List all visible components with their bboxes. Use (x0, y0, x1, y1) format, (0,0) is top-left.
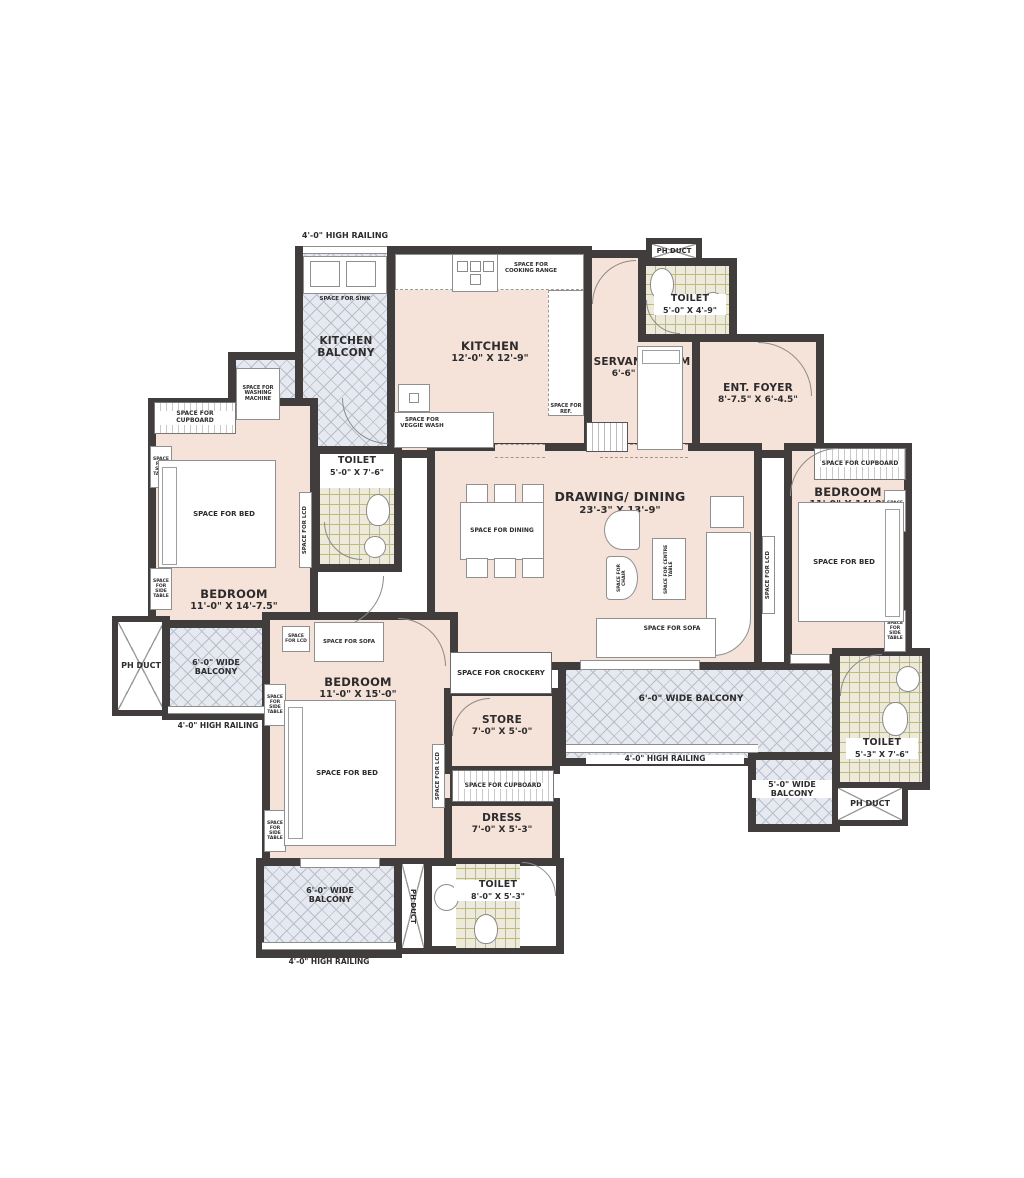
dress-label: DRESS 7'-0" X 5'-3" (448, 812, 556, 835)
ph-duct-bottom-label: PH DUCT (409, 889, 417, 924)
bed-pillow (288, 707, 303, 839)
veggie-wash-label: SPACE FOR VEGGIE WASH (396, 417, 448, 430)
dining-chair (522, 558, 544, 578)
kitchen-balcony-label: KITCHEN BALCONY (310, 335, 382, 359)
railing-top (303, 246, 387, 254)
burner (457, 261, 468, 272)
servant-bed (637, 346, 683, 450)
railing-top-label: 4'-0" HIGH RAILING (278, 231, 412, 240)
railing-left-label: 4'-0" HIGH RAILING (158, 722, 278, 731)
window-drawing-balcony (580, 660, 700, 670)
armchair-labeled: SPACE FOR CHAIR (606, 556, 638, 600)
lcd-bedroom-left: SPACE FOR LCD (299, 492, 312, 568)
ph-duct-bottom-right: PH DUCT (832, 782, 908, 826)
cooking-range (452, 254, 498, 292)
burner (470, 274, 481, 285)
dining-chair (494, 484, 516, 504)
balcony-bottom-label: 6'-0" WIDE BALCONY (288, 886, 372, 904)
ph-duct-left-label: PH DUCT (121, 661, 161, 670)
washing-machine-box: SPACE FOR WASHING MACHINE (236, 368, 280, 420)
lcd-bedroom-right: SPACE FOR LCD (762, 536, 775, 614)
lcd-bedroom-bottom-wall: SPACE FOR LCD (432, 744, 445, 808)
sink-basin (310, 261, 340, 287)
ph-duct-top-label: PH DUCT (657, 247, 692, 255)
wc-toilet-right (882, 702, 908, 736)
cupboard-dress: SPACE FOR CUPBOARD (452, 770, 554, 802)
centre-table: SPACE FOR CENTRE TABLE (652, 538, 686, 600)
burner (483, 261, 494, 272)
railing-left (168, 706, 264, 714)
balcony-right-small-label: 5'-0" WIDE BALCONY (752, 780, 832, 798)
floor-plan: PH DUCT PH DUCT PH DUCT PH DUCT 4'-0" HI… (0, 0, 1024, 1178)
ent-foyer-label: ENT. FOYER 8'-7.5" X 6'-4.5" (696, 382, 820, 405)
railing-mid-label: 4'-0" HIGH RAILING (586, 755, 744, 764)
bedroom-bottom-label: BEDROOM 11'-0" X 15'-0" (288, 676, 428, 701)
sofa-bedroom-bottom: SPACE FOR SOFA (314, 622, 384, 662)
dining-chair (466, 558, 488, 578)
crockery-unit: SPACE FOR CROCKERY (450, 652, 552, 694)
dining-table: SPACE FOR DINING (460, 502, 544, 560)
cupboard-bedroom-left: SPACE FOR CUPBOARD (154, 402, 236, 434)
balcony-left-label: 6'-0" WIDE BALCONY (172, 658, 260, 676)
dining-chair (466, 484, 488, 504)
side-table: SPACE FOR SIDE TABLE (264, 810, 286, 852)
veggie-sink (398, 384, 430, 412)
sink-counter (303, 256, 387, 294)
sofa-label: SPACE FOR SOFA (640, 626, 704, 633)
kitchen-label: KITCHEN 12'-0" X 12'-9" (410, 340, 570, 365)
toilet-right-label: TOILET 5'-3" X 7'-6" (846, 738, 918, 759)
railing-bottom (262, 942, 396, 950)
washing-machine-label: SPACE FOR WASHING MACHINE (237, 386, 279, 403)
basin-toilet-right (896, 666, 920, 692)
servant-bed-pillow (642, 350, 680, 364)
side-table: SPACE FOR SIDE TABLE (264, 684, 286, 726)
railing-bottom-label: 4'-0" HIGH RAILING (268, 958, 390, 967)
armchair (604, 510, 640, 550)
bed-bedroom-bottom: SPACE FOR BED (284, 700, 396, 846)
dining-chair (522, 484, 544, 504)
lcd-box-bedroom-bottom: SPACE FOR LCD (282, 626, 310, 652)
basin-toilet-left (364, 536, 386, 558)
kitchen-drawing-opening (495, 444, 545, 458)
dining-chair (494, 558, 516, 578)
window-bedroom-bottom-balcony (300, 858, 380, 868)
window-bedroom-right-balcony (790, 654, 830, 664)
bed-bedroom-right: SPACE FOR BED (798, 502, 904, 622)
ph-duct-br-label: PH DUCT (850, 799, 890, 808)
wc-toilet-left (366, 494, 390, 526)
bedroom-left-label: BEDROOM 11'-0" X 14'-7.5" (160, 588, 308, 613)
ref-label: SPACE FOR REF. (546, 404, 586, 415)
bed-pillow (885, 509, 900, 617)
wc-toilet-bottom (474, 914, 498, 944)
railing-mid (566, 744, 758, 753)
bed-pillow (162, 467, 177, 565)
cupboard-left-label: SPACE FOR CUPBOARD (155, 411, 235, 425)
bed-bedroom-left: SPACE FOR BED (158, 460, 276, 568)
stairs (586, 422, 628, 452)
sink-label: SPACE FOR SINK (303, 296, 387, 302)
toilet-left-label: TOILET 5'-0" X 7'-6" (314, 456, 400, 477)
cooking-range-label: SPACE FOR COOKING RANGE (500, 262, 562, 275)
sink-basin (346, 261, 376, 287)
veggie-basin (409, 393, 419, 403)
burner (470, 261, 481, 272)
corner-table (710, 496, 744, 528)
sofa-horizontal (596, 618, 716, 658)
balcony-mid-label: 6'-0" WIDE BALCONY (628, 694, 754, 704)
